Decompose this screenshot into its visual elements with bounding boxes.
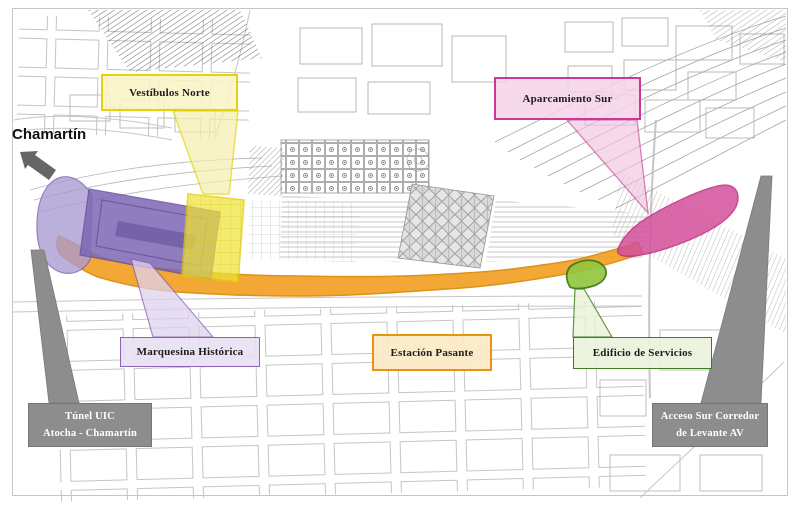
chamartin-arrow-icon — [20, 151, 56, 180]
label-estacion-pasante: Estación Pasante — [372, 334, 492, 371]
label-aparcamiento-sur: Aparcamiento Sur — [494, 77, 641, 120]
station-site-plan: Chamartín Vestíbulos Norte Aparcamiento … — [0, 0, 800, 506]
station-structures — [248, 140, 648, 268]
label-vestibulos-norte: Vestíbulos Norte — [101, 74, 238, 111]
label-marquesina-historica: Marquesina Histórica — [120, 337, 260, 367]
label-tunel-uic: Túnel UIC Atocha - Chamartín — [28, 403, 152, 447]
zone-edificio-servicios-area — [567, 260, 612, 337]
label-acceso-sur-corredor: Acceso Sur Corredor de Levante AV — [652, 403, 768, 447]
label-edificio-servicios: Edificio de Servicios — [573, 337, 712, 369]
zone-vestibulos-norte-area — [173, 111, 244, 282]
chamartin-direction-label: Chamartín — [12, 126, 86, 143]
